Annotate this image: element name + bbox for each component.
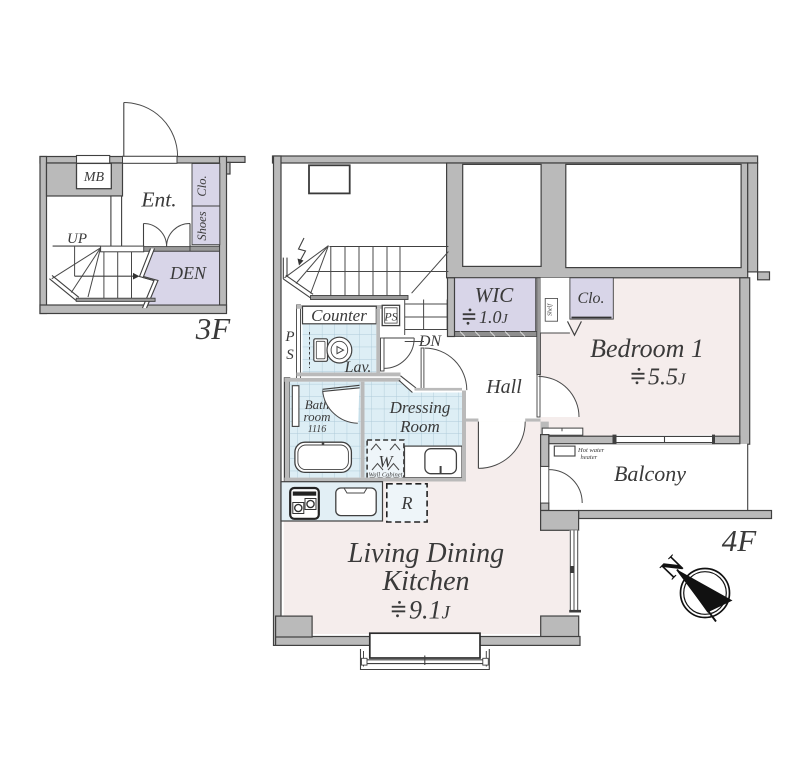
svg-text:R: R [401, 493, 413, 513]
svg-text:Hot water: Hot water [577, 447, 605, 454]
svg-text:heater: heater [581, 454, 598, 461]
svg-text:Bedroom 1: Bedroom 1 [590, 334, 704, 363]
svg-text:UP: UP [67, 231, 87, 247]
svg-text:1116: 1116 [308, 424, 327, 435]
svg-text:Shoes: Shoes [195, 211, 209, 240]
svg-text:Clo.: Clo. [577, 290, 604, 307]
svg-text:Kitchen: Kitchen [381, 566, 469, 597]
svg-text:Clo.: Clo. [195, 175, 209, 196]
svg-text:P: P [284, 329, 294, 345]
svg-text:4F: 4F [722, 523, 758, 558]
svg-text:Wall Cabinet: Wall Cabinet [369, 472, 403, 479]
svg-text:Dressing: Dressing [389, 398, 451, 417]
svg-text:room: room [304, 409, 331, 424]
svg-text:Room: Room [399, 417, 440, 436]
svg-text:Balcony: Balcony [614, 461, 686, 486]
svg-text:Hall: Hall [485, 376, 522, 398]
svg-text:3F: 3F [195, 311, 232, 346]
svg-text:DEN: DEN [169, 263, 207, 283]
svg-text:Counter: Counter [311, 306, 367, 325]
svg-text:Shelf: Shelf [546, 303, 553, 316]
svg-text:Living Dining: Living Dining [347, 538, 504, 569]
svg-text:Ent.: Ent. [140, 188, 176, 212]
svg-text:PS: PS [383, 310, 397, 324]
svg-text:WIC: WIC [475, 283, 514, 307]
svg-text:S: S [286, 347, 294, 363]
svg-text:MB: MB [83, 170, 105, 185]
